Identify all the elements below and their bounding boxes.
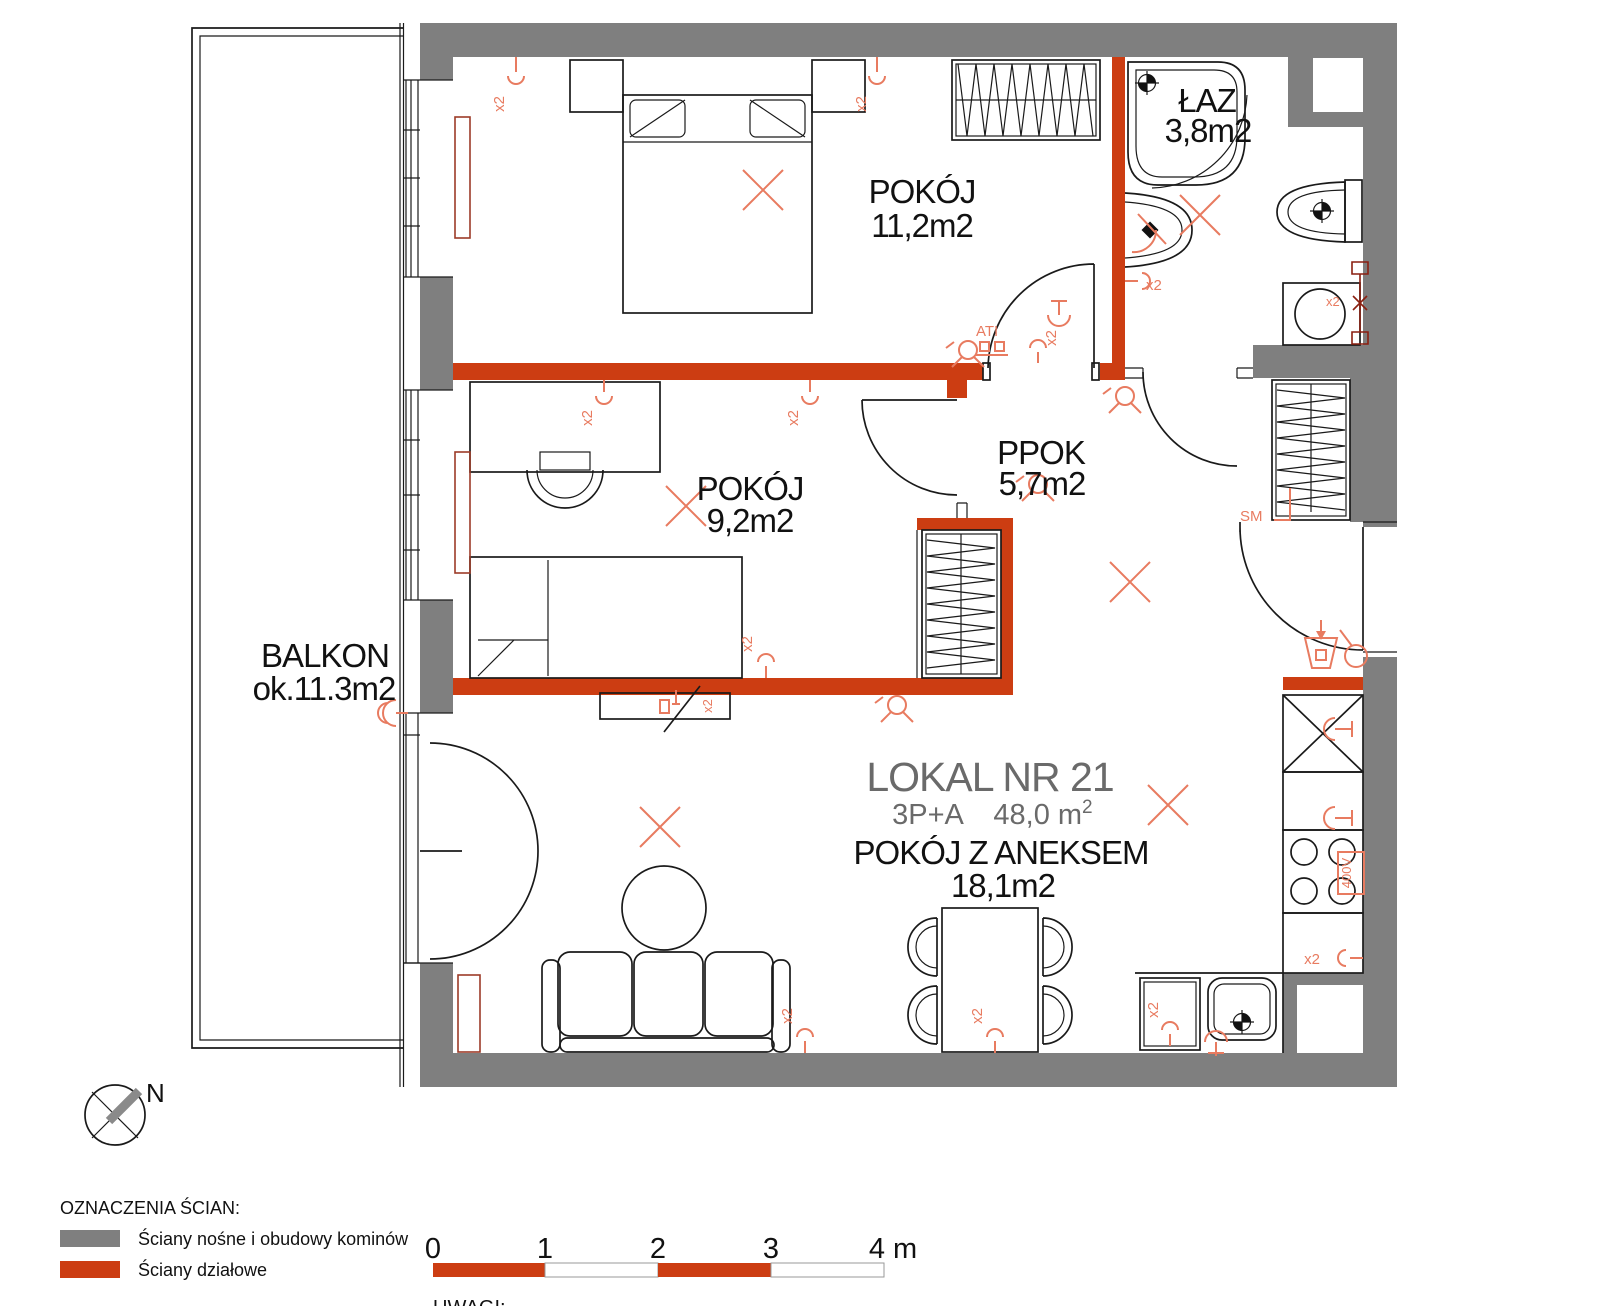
toilet-valve-icon	[1310, 199, 1334, 223]
living-name: POKÓJ Z ANEKSEM	[854, 834, 1149, 871]
scale-tick-2: 2	[650, 1233, 666, 1265]
wall-lamp-icon	[875, 696, 913, 722]
light-x-bathroom	[1180, 195, 1220, 235]
socket-mark: x2	[853, 96, 870, 112]
washbasin	[1125, 193, 1192, 267]
light-x-aneks	[1148, 785, 1188, 825]
scale-seg-4	[771, 1263, 884, 1277]
ati-mark: ATI	[976, 323, 998, 340]
bedroom-furniture	[570, 60, 1100, 313]
radiators	[455, 117, 480, 1052]
living-area: 18,1m2	[951, 867, 1055, 904]
unit-type: 3P+A	[892, 799, 964, 831]
legend-title: OZNACZENIA ŚCIAN:	[60, 1197, 240, 1218]
legend-label-partition: Ściany działowe	[138, 1259, 267, 1280]
double-bed	[623, 95, 812, 313]
compass-north-label: N	[146, 1078, 165, 1108]
windows	[403, 80, 420, 963]
floor-plan-page: POKÓJ 11,2m2 ŁAZ 3,8m2 POKÓJ 9,2m2 PPOK …	[0, 0, 1608, 1306]
balcony-outline	[192, 28, 403, 1048]
legend-swatch-partition	[60, 1261, 120, 1278]
scale-bar: 0 1 2 3 4 m	[425, 1233, 917, 1277]
socket-mark: x2	[785, 410, 802, 426]
scale-end-label: 4 m	[869, 1233, 917, 1265]
desk-chair	[527, 452, 603, 508]
bathroom-area: 3,8m2	[1165, 112, 1252, 149]
floor-plan-drawing: POKÓJ 11,2m2 ŁAZ 3,8m2 POKÓJ 9,2m2 PPOK …	[0, 0, 1608, 1306]
socket-icon	[1162, 1022, 1178, 1046]
socket-mark: x2	[779, 1008, 796, 1024]
socket-mark: x2	[1145, 1002, 1162, 1018]
legend-label-load-bearing: Ściany nośne i obudowy kominów	[138, 1228, 409, 1249]
socket-mark: x2	[1304, 951, 1320, 968]
socket-mark: x2	[739, 636, 756, 652]
socket-mark: x2	[579, 410, 596, 426]
unit-title: LOKAL NR 21	[866, 754, 1113, 800]
balcony-area: ok.11.3m2	[253, 670, 396, 707]
legend-swatch-load-bearing	[60, 1230, 120, 1247]
scale-tick-1: 1	[537, 1233, 553, 1265]
socket-mark: x2	[491, 96, 508, 112]
scale-seg-3	[658, 1263, 771, 1277]
sm-mark: SM	[1240, 508, 1263, 525]
single-bed	[470, 557, 742, 678]
wall-legend: OZNACZENIA ŚCIAN: Ściany nośne i obudowy…	[60, 1197, 409, 1280]
nightstand-left	[570, 60, 623, 112]
counter-2	[1283, 913, 1363, 973]
socket-icon	[802, 380, 818, 404]
desk	[470, 382, 660, 472]
tap-symbols	[1135, 71, 1334, 1034]
center-closet	[922, 530, 1001, 678]
sink-tap-icon	[1230, 1010, 1254, 1034]
socket-icon	[508, 57, 524, 84]
unit-title-block: LOKAL NR 21 3P+A 48,0 m2	[866, 754, 1113, 831]
scale-seg-2	[545, 1263, 658, 1277]
light-x-living	[640, 807, 680, 847]
bedroom-wardrobe	[952, 60, 1100, 140]
hall-wardrobe	[1272, 380, 1350, 520]
socket-icon	[1338, 950, 1363, 966]
bedroom-name: POKÓJ	[869, 173, 976, 210]
socket-icon	[869, 57, 885, 84]
socket-icon	[797, 1029, 813, 1053]
unit-area: 48,0 m2	[993, 797, 1092, 831]
room2-furniture	[470, 382, 742, 678]
videophone-icon	[1305, 620, 1367, 668]
appliance-outlet-icon	[1048, 301, 1070, 326]
scale-tick-0: 0	[425, 1233, 441, 1265]
north-arrow	[109, 1091, 139, 1121]
sofa	[542, 952, 790, 1052]
light-x-bedroom	[743, 170, 783, 210]
compass: N	[85, 1078, 165, 1145]
partition-walls	[453, 57, 1363, 695]
coffee-table	[622, 866, 706, 950]
power-mark: 400V	[1339, 857, 1354, 888]
scale-seg-1	[433, 1263, 545, 1277]
socket-mark: x2	[700, 699, 715, 713]
shower-drain-icon	[1135, 71, 1159, 95]
hall-area: 5,7m2	[999, 465, 1086, 502]
socket-mark: x2	[1146, 277, 1162, 294]
scale-tick-3: 3	[763, 1233, 779, 1265]
light-x-hall	[1110, 562, 1150, 602]
bedroom-area: 11,2m2	[871, 207, 973, 244]
notes-label: UWAGI:	[433, 1297, 506, 1306]
wall-lamp-icon	[1103, 387, 1141, 413]
room2-area: 9,2m2	[707, 502, 794, 539]
balcony-name: BALKON	[261, 637, 389, 674]
appliance-outlet-icon	[1324, 807, 1352, 829]
socket-mark: x2	[1326, 294, 1340, 309]
socket-mark: x2	[1043, 330, 1060, 346]
appliance-outlet-icon	[1205, 1031, 1227, 1056]
socket-mark: x2	[969, 1008, 986, 1024]
socket-icon	[987, 1029, 1003, 1053]
socket-icon	[758, 654, 774, 678]
socket-icon	[596, 380, 612, 404]
dining-chairs	[908, 918, 1072, 1044]
